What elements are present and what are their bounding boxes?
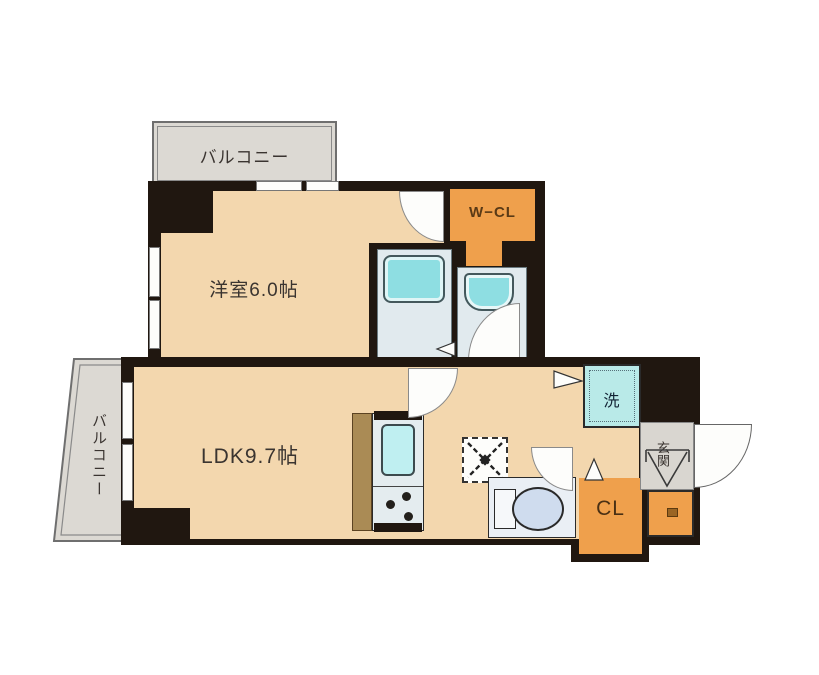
- window-ldk-2: [122, 444, 133, 501]
- washing-machine-space: 洗: [583, 364, 641, 428]
- bathtub: [383, 255, 445, 303]
- shoe-cabinet-handle: [667, 508, 678, 517]
- western-room-label: 洋室6.0帖: [154, 275, 354, 302]
- window-balcony-door-1: [256, 181, 302, 191]
- western-room-corner-pillar: [161, 191, 213, 233]
- toilet-bowl: [512, 487, 564, 531]
- walk-in-closet-label: W−CL: [450, 204, 535, 221]
- stove-burner-1: [386, 500, 395, 509]
- closet-label: CL: [579, 497, 642, 521]
- floor-plan: バルコニー バルコニー W−CL: [0, 0, 819, 675]
- kitchen-sink: [381, 424, 415, 476]
- shoe-cabinet: [647, 490, 694, 537]
- kitchen-cap-bottom: [374, 523, 422, 532]
- window-balcony-door-2: [306, 181, 339, 191]
- kitchen-counter-side: [352, 413, 372, 531]
- entrance-label: 玄関: [653, 426, 672, 482]
- stove-burner-3: [404, 512, 413, 521]
- ldk-corner-step: [134, 508, 190, 539]
- washer-label: 洗: [585, 387, 639, 411]
- walk-in-closet-doorway: [466, 241, 502, 266]
- refrigerator-x-mark: [464, 439, 506, 481]
- window-western-room-2: [149, 300, 160, 349]
- kitchen-divider: [373, 486, 423, 487]
- stove-burner-2: [402, 492, 411, 501]
- window-ldk-1: [122, 382, 133, 439]
- ldk-label: LDK9.7帖: [150, 440, 350, 470]
- balcony-left-label: バルコニー: [88, 385, 109, 525]
